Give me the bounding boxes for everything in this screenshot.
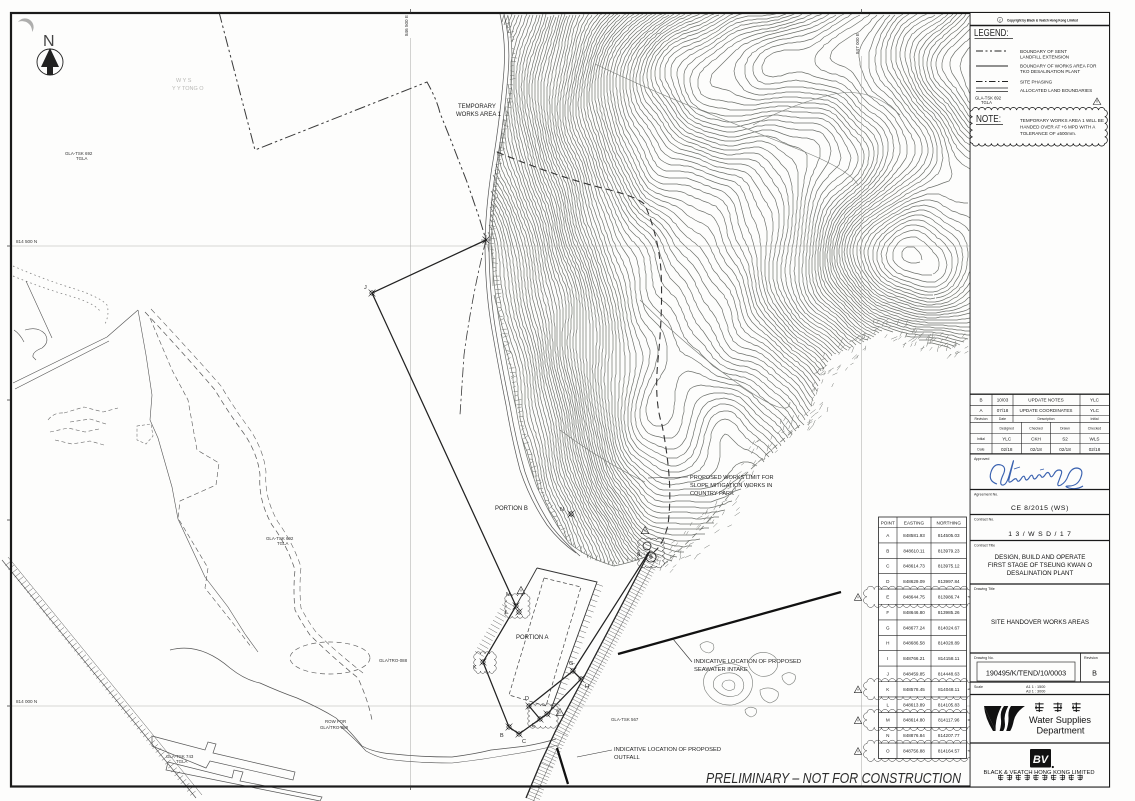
svg-text:813979.23: 813979.23 <box>938 548 960 553</box>
svg-text:814207.77: 814207.77 <box>938 733 960 738</box>
svg-text:M: M <box>506 592 511 598</box>
svg-text:Designed: Designed <box>1000 427 1014 431</box>
svg-text:Initial: Initial <box>1091 417 1099 421</box>
svg-text:SEAWATER INTAKE: SEAWATER INTAKE <box>694 667 748 673</box>
svg-text:848459.85: 848459.85 <box>903 672 925 677</box>
svg-text:PORTION A: PORTION A <box>516 635 549 641</box>
svg-text:J: J <box>887 672 889 677</box>
svg-text:ROW FOR: ROW FOR <box>325 719 346 724</box>
svg-text:848646.80: 848646.80 <box>903 610 925 615</box>
svg-text:SITE PHASING: SITE PHASING <box>1020 80 1053 85</box>
svg-text:S2: S2 <box>1062 437 1068 442</box>
svg-text:814 500 N: 814 500 N <box>16 239 37 244</box>
svg-text:814505.03: 814505.03 <box>938 533 960 538</box>
svg-text:814158.11: 814158.11 <box>938 656 960 661</box>
svg-text:TGLA: TGLA <box>981 100 992 105</box>
svg-text:B: B <box>979 398 982 403</box>
svg-text:Date: Date <box>999 417 1006 421</box>
svg-text:UPDATE COORDINATES: UPDATE COORDINATES <box>1020 408 1073 413</box>
svg-text:DESIGN, BUILD AND OPERATE: DESIGN, BUILD AND OPERATE <box>995 554 1086 561</box>
svg-text:HANDED OVER AT +6 MPD WITH A: HANDED OVER AT +6 MPD WITH A <box>1020 125 1096 130</box>
svg-text:M: M <box>886 718 890 723</box>
svg-text:D: D <box>525 696 529 702</box>
svg-text:848677.24: 848677.24 <box>903 625 925 630</box>
svg-text:A3 1 : 3000: A3 1 : 3000 <box>1026 690 1045 694</box>
svg-text:INDICATIVE LOCATION OF PROPOSE: INDICATIVE LOCATION OF PROPOSED <box>694 659 801 665</box>
svg-text:W Y S: W Y S <box>176 78 192 84</box>
svg-text:WORKS AREA 1: WORKS AREA 1 <box>456 112 502 118</box>
svg-text:1 3 / W S D / 1 7: 1 3 / W S D / 1 7 <box>1008 531 1071 538</box>
svg-text:YLC: YLC <box>1002 437 1012 442</box>
svg-text:LEGEND:: LEGEND: <box>974 28 1009 39</box>
svg-text:Department: Department <box>1037 726 1085 736</box>
svg-text:190495/K/TEND/10/0003: 190495/K/TEND/10/0003 <box>986 669 1066 678</box>
svg-text:H: H <box>886 641 889 646</box>
svg-text:L: L <box>886 702 889 707</box>
svg-text:848610.11: 848610.11 <box>903 548 925 553</box>
svg-text:848614.73: 848614.73 <box>903 564 925 569</box>
svg-text:INDICATIVE LOCATION OF PROPOSE: INDICATIVE LOCATION OF PROPOSED <box>614 747 721 753</box>
svg-text:SITE HANDOVER WORKS AREAS: SITE HANDOVER WORKS AREAS <box>991 619 1089 626</box>
svg-text:B: B <box>1092 669 1097 678</box>
svg-text:BOUNDARY OF WORKS AREA FOR: BOUNDARY OF WORKS AREA FOR <box>1020 64 1097 69</box>
svg-text:848578.45: 848578.45 <box>903 687 925 692</box>
svg-text:Contract No.: Contract No. <box>974 518 994 522</box>
svg-text:07/18: 07/18 <box>997 408 1009 413</box>
svg-text:Approved: Approved <box>974 457 989 461</box>
svg-text:J: J <box>364 285 367 291</box>
svg-text:Drawing No.: Drawing No. <box>974 656 994 660</box>
svg-text:I: I <box>887 656 888 661</box>
svg-text:02/18: 02/18 <box>1001 447 1013 452</box>
svg-text:TOLERANCE OF ±500mm.: TOLERANCE OF ±500mm. <box>1020 131 1076 136</box>
svg-text:848766.21: 848766.21 <box>903 656 925 661</box>
svg-text:N: N <box>560 507 564 513</box>
svg-text:A1 1 : 1500: A1 1 : 1500 <box>1026 685 1045 689</box>
svg-text:NORTHING: NORTHING <box>937 521 962 526</box>
svg-text:Drawing Title: Drawing Title <box>974 587 995 591</box>
svg-text:B: B <box>500 733 504 739</box>
svg-text:846 500 E: 846 500 E <box>404 15 409 36</box>
svg-text:813986.74: 813986.74 <box>938 595 960 600</box>
svg-text:FIRST STAGE OF TSEUNG KWAN O: FIRST STAGE OF TSEUNG KWAN O <box>988 562 1092 569</box>
svg-text:POINT: POINT <box>881 521 895 526</box>
svg-text:848644.75: 848644.75 <box>903 595 925 600</box>
svg-text:02/18: 02/18 <box>1030 447 1042 452</box>
svg-text:GLA-TSK 567: GLA-TSK 567 <box>611 717 639 722</box>
svg-text:TEMPORARY WORKS AREA 1 WILL BE: TEMPORARY WORKS AREA 1 WILL BE <box>1020 118 1104 123</box>
svg-text:847 000 E: 847 000 E <box>855 33 860 54</box>
svg-text:ALLOCATED LAND BOUNDARIES: ALLOCATED LAND BOUNDARIES <box>1020 88 1092 93</box>
svg-text:Water Supplies: Water Supplies <box>1029 715 1091 725</box>
svg-text:C: C <box>522 739 526 745</box>
svg-text:848629.09: 848629.09 <box>903 579 925 584</box>
svg-text:814028.89: 814028.89 <box>938 641 960 646</box>
svg-text:814024.67: 814024.67 <box>938 625 960 630</box>
svg-text:813975.12: 813975.12 <box>938 564 960 569</box>
svg-text:YLC: YLC <box>1090 408 1100 413</box>
svg-text:PROPOSED WORKS LIMIT FOR: PROPOSED WORKS LIMIT FOR <box>690 475 774 481</box>
svg-text:TGLA: TGLA <box>76 156 88 161</box>
svg-text:SLOPE MITIGATION WORKS IN: SLOPE MITIGATION WORKS IN <box>690 483 772 489</box>
svg-text:848756.88: 848756.88 <box>903 749 925 754</box>
svg-text:c: c <box>999 18 1001 22</box>
svg-text:Y Y TONG O: Y Y TONG O <box>172 86 204 92</box>
svg-text:BOUNDARY OF SENT: BOUNDARY OF SENT <box>1020 49 1067 54</box>
svg-text:WLS: WLS <box>1090 437 1100 442</box>
svg-text:G: G <box>569 661 573 667</box>
svg-text:CKH: CKH <box>1031 437 1041 442</box>
svg-text:814105.83: 814105.83 <box>938 702 960 707</box>
svg-text:Checked: Checked <box>1088 427 1101 431</box>
svg-text:848613.89: 848613.89 <box>903 702 925 707</box>
svg-text:Revision: Revision <box>974 417 987 421</box>
svg-text:Contract Title: Contract Title <box>974 544 995 548</box>
svg-text:02/18: 02/18 <box>1059 447 1071 452</box>
svg-text:DESALINATION PLANT: DESALINATION PLANT <box>1007 570 1074 577</box>
svg-text:NOTE:: NOTE: <box>976 114 1001 125</box>
svg-text:H: H <box>585 684 589 690</box>
svg-text:O: O <box>886 749 890 754</box>
svg-text:814117.96: 814117.96 <box>938 718 960 723</box>
svg-text:814048.11: 814048.11 <box>938 687 960 692</box>
svg-text:Agreement No.: Agreement No. <box>974 493 998 497</box>
svg-text:F: F <box>886 610 889 615</box>
svg-text:TEMPORARY: TEMPORARY <box>458 104 496 110</box>
svg-text:PORTION B: PORTION B <box>495 506 528 512</box>
svg-text:813997.84: 813997.84 <box>938 579 960 584</box>
svg-text:814164.57: 814164.57 <box>938 749 960 754</box>
svg-text:814 000 N: 814 000 N <box>16 699 37 704</box>
svg-text:B: B <box>886 548 889 553</box>
svg-text:EASTING: EASTING <box>904 521 925 526</box>
svg-text:Revision: Revision <box>1084 656 1098 660</box>
svg-text:N: N <box>43 33 55 50</box>
svg-text:Description: Description <box>1038 417 1055 421</box>
svg-text:PRELIMINARY – NOT FOR CONSTRUC: PRELIMINARY – NOT FOR CONSTRUCTION <box>706 770 961 787</box>
svg-text:N: N <box>886 733 889 738</box>
svg-text:Copyright by Black & Veatch Ho: Copyright by Black & Veatch Hong Kong Li… <box>1007 18 1078 22</box>
svg-text:848876.84: 848876.84 <box>903 733 925 738</box>
svg-text:848686.58: 848686.58 <box>903 641 925 646</box>
svg-text:OUTFALL: OUTFALL <box>614 755 641 761</box>
svg-text:10/03: 10/03 <box>997 398 1009 403</box>
svg-text:814448.63: 814448.63 <box>938 672 960 677</box>
svg-text:BV: BV <box>1033 754 1050 766</box>
svg-text:UPDATE NOTES: UPDATE NOTES <box>1028 398 1063 403</box>
svg-text:Scale: Scale <box>974 685 983 689</box>
svg-text:Date: Date <box>977 448 984 452</box>
svg-text:TKO DESALINATION PLANT: TKO DESALINATION PLANT <box>1020 69 1080 74</box>
svg-text:LANDFILL EXTENSION: LANDFILL EXTENSION <box>1020 55 1069 60</box>
svg-text:Initial: Initial <box>977 437 985 441</box>
svg-text:02/18: 02/18 <box>1089 447 1101 452</box>
svg-text:Checked: Checked <box>1029 427 1042 431</box>
svg-text:848581.93: 848581.93 <box>903 533 925 538</box>
svg-text:COUNTRY PARK: COUNTRY PARK <box>690 491 734 497</box>
svg-text:GLA/TRO-088: GLA/TRO-088 <box>379 658 408 663</box>
svg-text:Drawn: Drawn <box>1060 427 1070 431</box>
svg-text:G: G <box>886 625 890 630</box>
svg-text:YLC: YLC <box>1090 398 1100 403</box>
svg-text:CE 8/2015 (WS): CE 8/2015 (WS) <box>1011 505 1069 512</box>
svg-text:E: E <box>886 595 889 600</box>
svg-text:813985.26: 813985.26 <box>938 610 960 615</box>
svg-text:848614.80: 848614.80 <box>903 718 925 723</box>
